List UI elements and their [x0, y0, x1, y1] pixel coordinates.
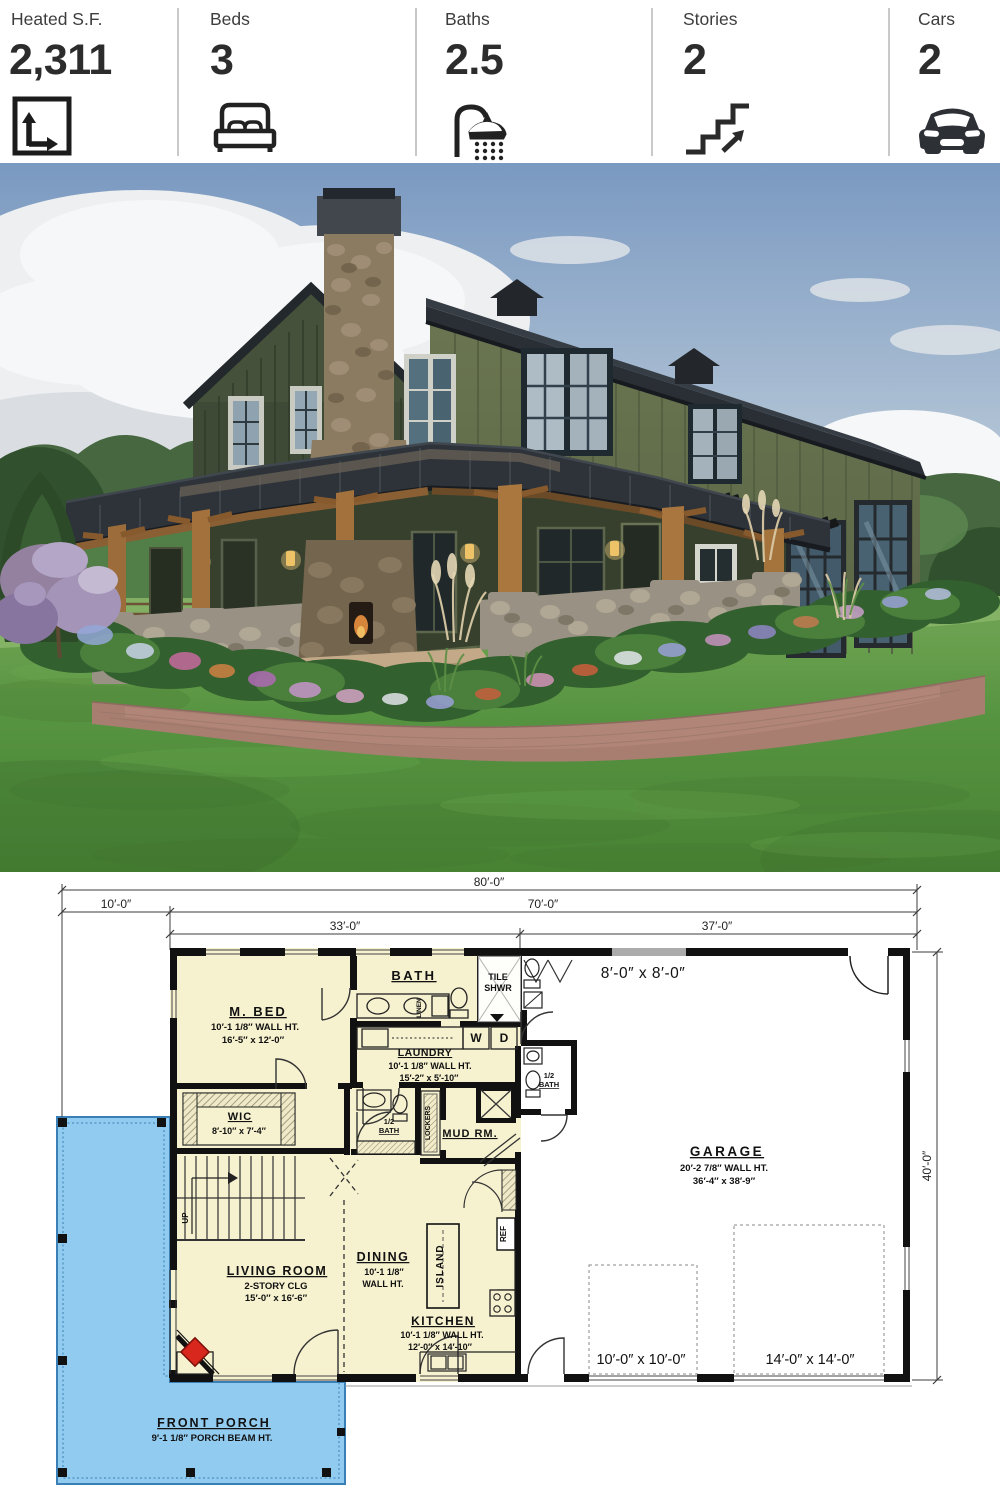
svg-text:10′-1 1/8″ WALL HT.: 10′-1 1/8″ WALL HT.	[211, 1022, 299, 1033]
svg-text:WALL HT.: WALL HT.	[362, 1279, 403, 1289]
svg-text:LOCKERS: LOCKERS	[425, 1106, 432, 1141]
svg-text:M. BED: M. BED	[229, 1004, 287, 1019]
svg-text:BATH: BATH	[539, 1080, 559, 1089]
svg-text:WIC: WIC	[228, 1111, 252, 1123]
svg-text:LINEN: LINEN	[416, 998, 423, 1018]
svg-text:BATH: BATH	[391, 968, 436, 983]
svg-text:10′-1 1/8″ WALL HT.: 10′-1 1/8″ WALL HT.	[400, 1330, 483, 1340]
svg-text:LIVING ROOM: LIVING ROOM	[227, 1264, 328, 1278]
svg-text:ISLAND: ISLAND	[435, 1244, 446, 1287]
svg-text:GARAGE: GARAGE	[690, 1144, 764, 1159]
svg-text:20′-2 7/8″ WALL HT.: 20′-2 7/8″ WALL HT.	[680, 1163, 768, 1174]
svg-text:14′-0″ x 14′-0″: 14′-0″ x 14′-0″	[765, 1352, 854, 1368]
svg-text:LAUNDRY: LAUNDRY	[398, 1047, 452, 1059]
svg-text:12′-0″ x 14′-10″: 12′-0″ x 14′-10″	[408, 1342, 473, 1352]
svg-text:15′-0″ x 16′-6″: 15′-0″ x 16′-6″	[245, 1293, 308, 1304]
svg-text:16′-5″ x 12′-0″: 16′-5″ x 12′-0″	[222, 1035, 285, 1046]
svg-text:SHWR: SHWR	[484, 983, 512, 993]
svg-text:FRONT PORCH: FRONT PORCH	[157, 1416, 271, 1430]
svg-text:1/2: 1/2	[384, 1117, 394, 1126]
svg-text:BATH: BATH	[379, 1126, 399, 1135]
svg-text:15′-2″ x 5′-10″: 15′-2″ x 5′-10″	[400, 1073, 460, 1083]
svg-text:10′-1 1/8″: 10′-1 1/8″	[364, 1267, 404, 1277]
svg-text:1/2: 1/2	[544, 1071, 554, 1080]
svg-text:DINING: DINING	[357, 1250, 410, 1264]
svg-text:KITCHEN: KITCHEN	[411, 1314, 475, 1328]
svg-text:8′-10″ x 7′-4″: 8′-10″ x 7′-4″	[212, 1126, 267, 1136]
svg-text:9′-1 1/8″ PORCH BEAM HT.: 9′-1 1/8″ PORCH BEAM HT.	[152, 1433, 273, 1444]
svg-text:TILE: TILE	[488, 972, 508, 982]
svg-text:10′-1 1/8″ WALL HT.: 10′-1 1/8″ WALL HT.	[388, 1061, 471, 1071]
svg-text:UP: UP	[181, 1212, 190, 1224]
svg-text:8′-0″ x 8′-0″: 8′-0″ x 8′-0″	[601, 965, 685, 982]
svg-text:36′-4″ x 38′-9″: 36′-4″ x 38′-9″	[693, 1176, 756, 1187]
svg-text:REF: REF	[499, 1226, 508, 1242]
svg-text:2-STORY CLG: 2-STORY CLG	[244, 1281, 307, 1292]
svg-text:10′-0″ x 10′-0″: 10′-0″ x 10′-0″	[596, 1352, 685, 1368]
svg-text:MUD RM.: MUD RM.	[442, 1128, 497, 1140]
